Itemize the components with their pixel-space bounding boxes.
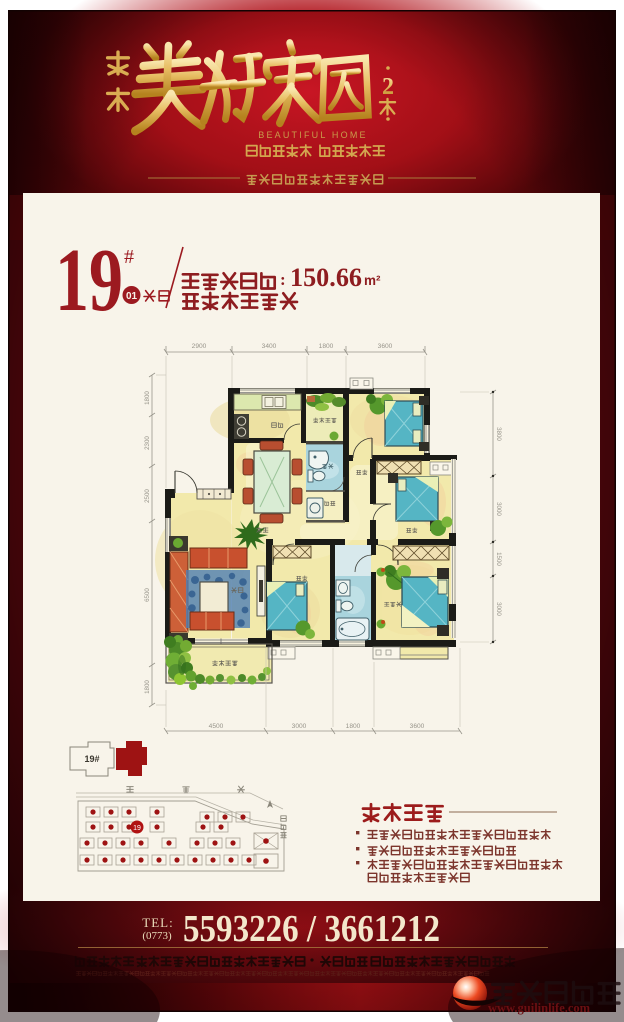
svg-text:19: 19 <box>133 825 141 832</box>
svg-text:#: # <box>124 246 134 268</box>
svg-text:3000: 3000 <box>495 602 502 616</box>
svg-text:www.guilinlife.com: www.guilinlife.com <box>488 1001 591 1015</box>
svg-text:1800: 1800 <box>346 723 361 730</box>
svg-text:150.66: 150.66 <box>290 262 362 292</box>
svg-text:01: 01 <box>126 291 138 302</box>
svg-text:(0773): (0773) <box>142 930 172 942</box>
svg-text:4500: 4500 <box>209 723 224 730</box>
svg-text:3400: 3400 <box>262 343 277 350</box>
svg-text:1800: 1800 <box>144 680 151 694</box>
svg-text:1500: 1500 <box>495 552 502 566</box>
svg-text:1800: 1800 <box>319 343 334 350</box>
svg-text:19: 19 <box>55 231 123 330</box>
svg-text:2900: 2900 <box>192 343 207 350</box>
svg-text::: : <box>280 270 286 289</box>
svg-text:m²: m² <box>364 273 381 288</box>
svg-text:19#: 19# <box>84 754 99 764</box>
svg-text:2500: 2500 <box>144 489 151 503</box>
svg-text:3800: 3800 <box>495 427 502 441</box>
svg-text:2300: 2300 <box>144 436 151 450</box>
svg-text:6500: 6500 <box>144 588 151 602</box>
svg-text:1800: 1800 <box>144 391 151 405</box>
svg-text:3000: 3000 <box>495 502 502 516</box>
svg-text:3000: 3000 <box>292 723 307 730</box>
svg-text:2: 2 <box>382 74 394 100</box>
svg-text:BEAUTIFUL HOME: BEAUTIFUL HOME <box>258 130 367 140</box>
svg-text:5593226 / 3661212: 5593226 / 3661212 <box>183 908 440 950</box>
svg-text:3600: 3600 <box>410 723 425 730</box>
svg-text:TEL:: TEL: <box>142 915 173 930</box>
svg-text:3600: 3600 <box>378 343 393 350</box>
